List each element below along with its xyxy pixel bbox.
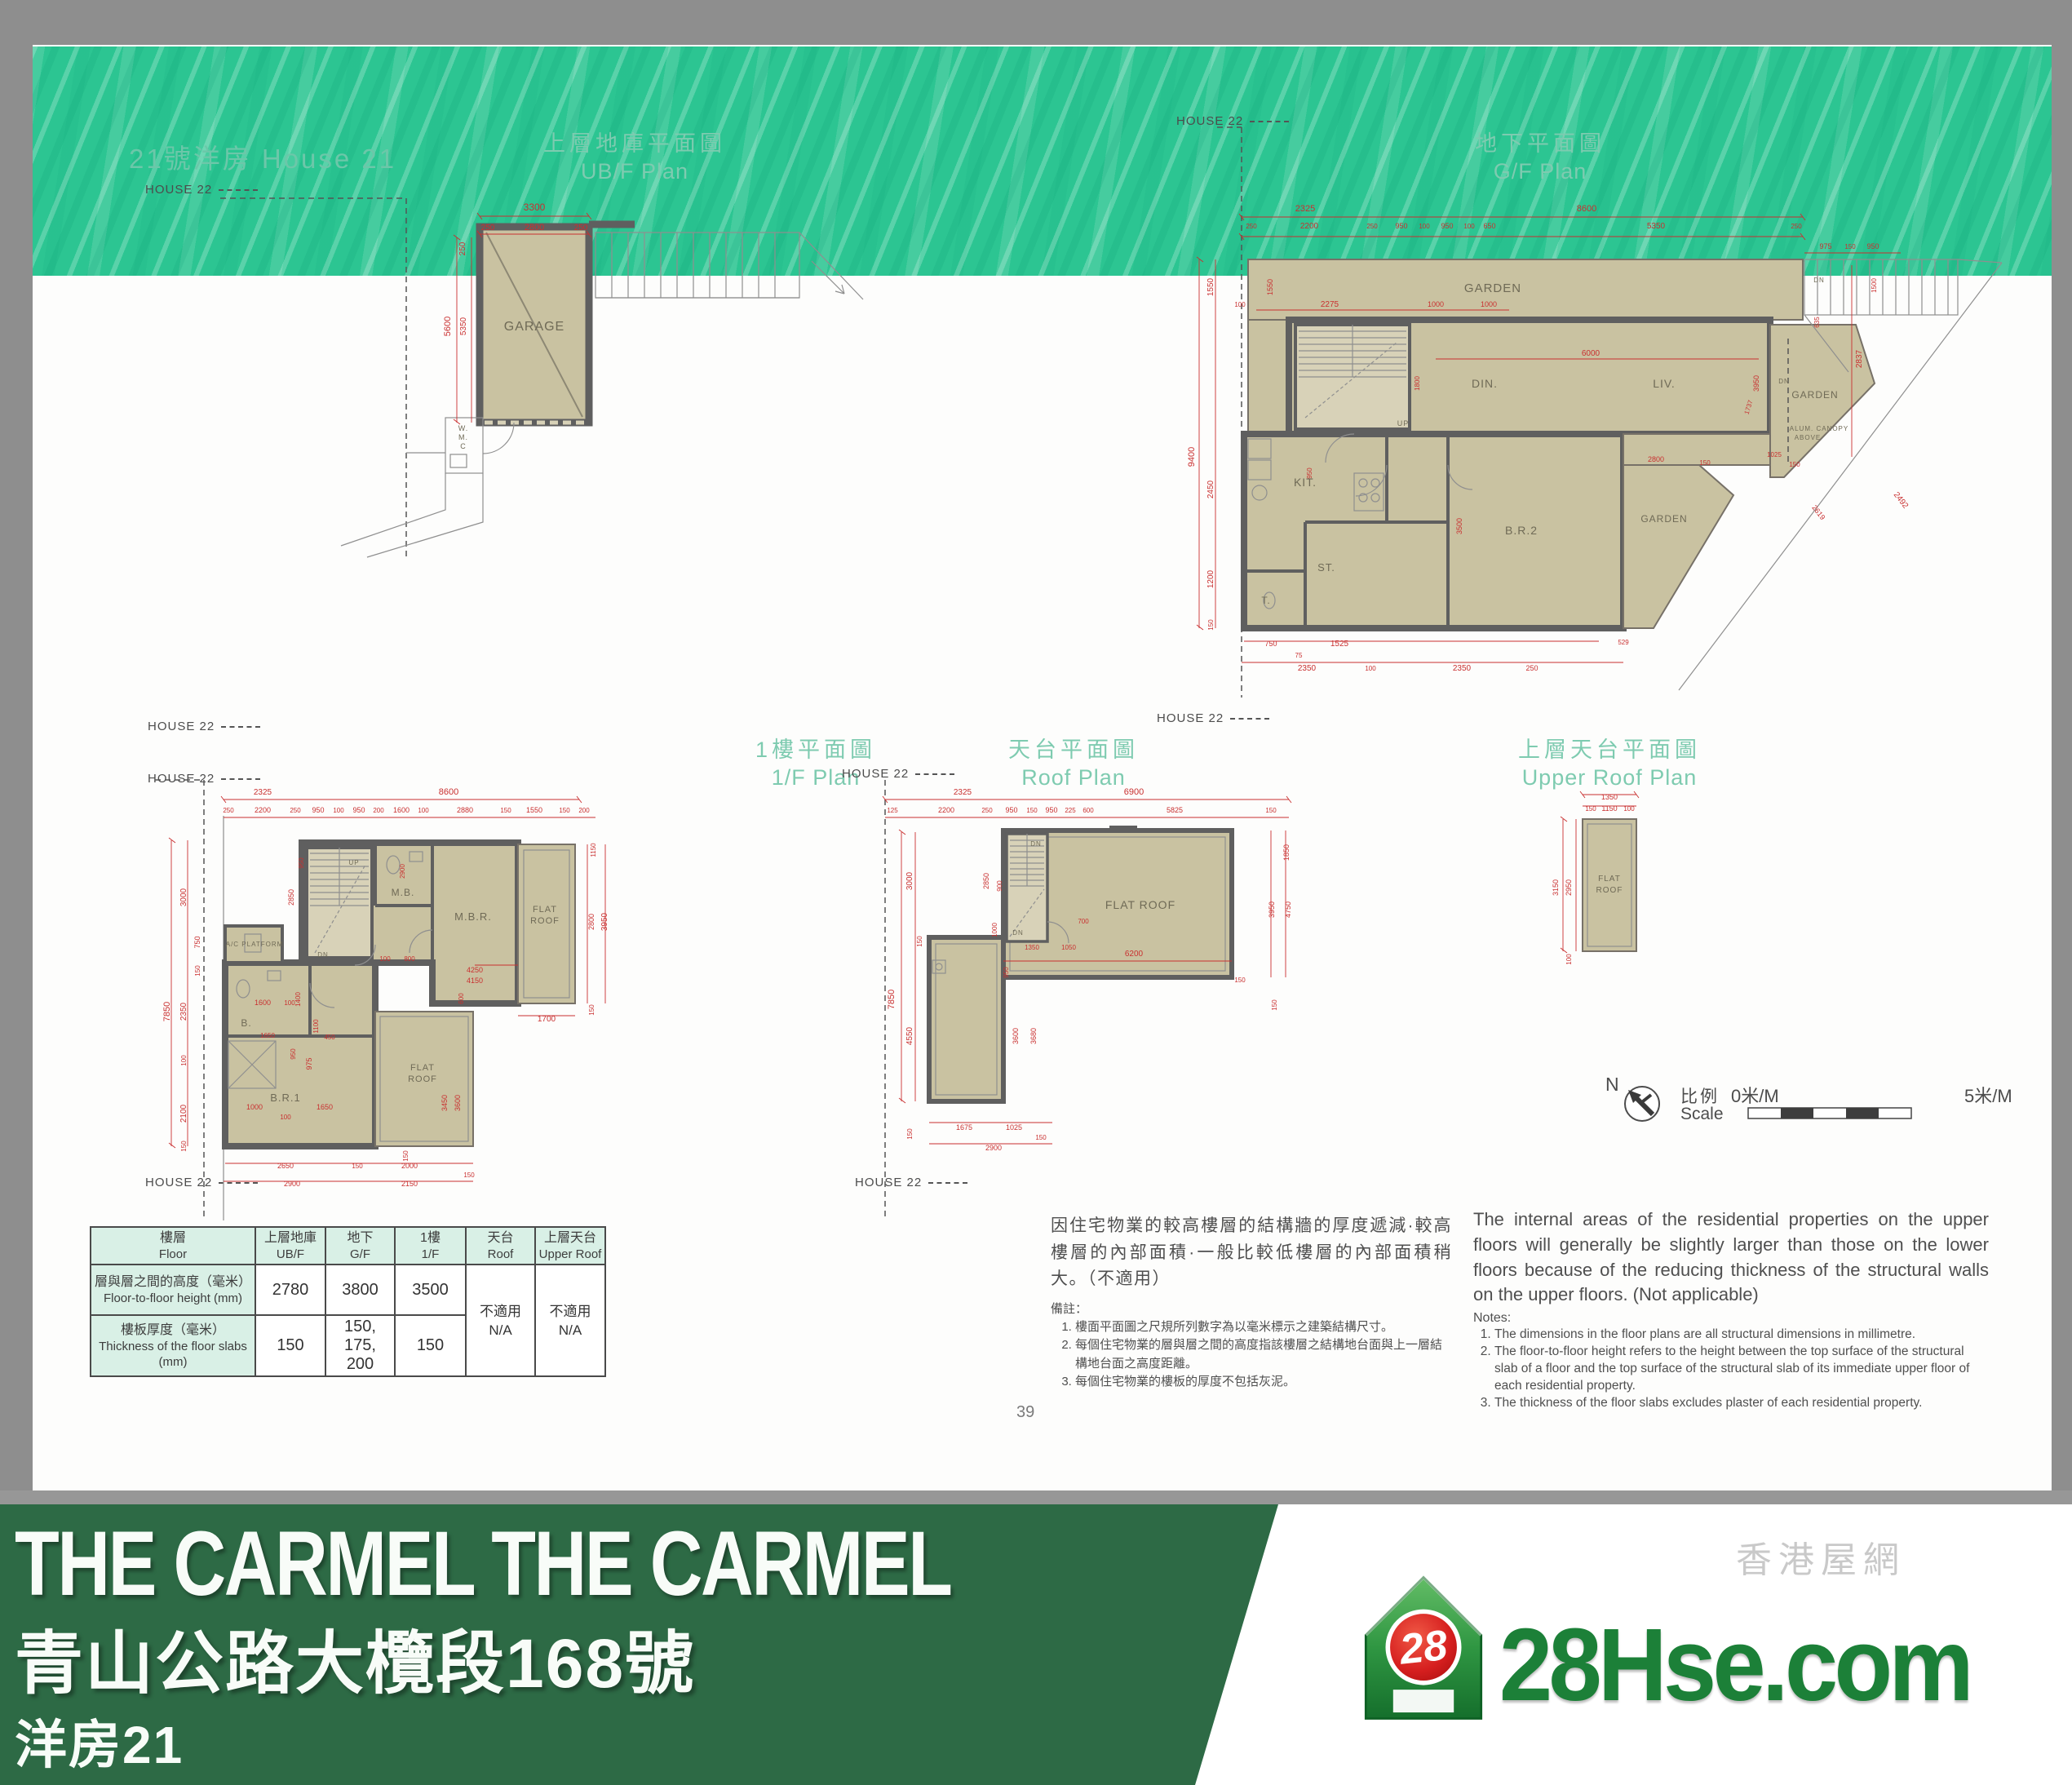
dimension-label: 2450 <box>1206 480 1215 498</box>
dimension-label: 2880 <box>457 806 473 814</box>
dimension-label: 100 <box>180 1055 188 1066</box>
dimension-label: 150 <box>1035 1134 1047 1141</box>
dimension-label: 250 <box>481 224 495 233</box>
dimension-label: 150 <box>402 1150 410 1162</box>
roof-plan-drawing: FLAT ROOFDNDN232569001252200250950150950… <box>865 767 1322 1224</box>
boundary-label-house22: HOUSE 22 <box>148 720 260 733</box>
dimension-label: 250 <box>1366 223 1378 230</box>
dimension-label: 2200 <box>938 806 954 814</box>
dimension-label: 950 <box>1866 242 1879 250</box>
dimension-label: 100 <box>1234 301 1246 308</box>
dimension-label: 1400 <box>294 992 302 1007</box>
dimension-label: 2950 <box>1565 879 1573 896</box>
dimension-label: 2837 <box>1855 349 1864 368</box>
dimension-label: 1550 <box>1206 277 1215 296</box>
dimension-label: 1650 <box>317 1103 333 1111</box>
watermark-text: 香港屋網 <box>1736 1530 1906 1583</box>
dimension-label: 950 <box>1441 222 1453 230</box>
logo-number: 28 <box>1397 1622 1450 1674</box>
dimension-label: 4750 <box>1284 901 1292 918</box>
scale-label-en: Scale <box>1680 1105 1724 1124</box>
room-label: B. <box>241 1017 251 1029</box>
dimension-label: 4250 <box>467 966 483 974</box>
dimension-label: 3950 <box>1268 901 1276 918</box>
dimension-label: 7850 <box>887 990 897 1009</box>
dimension-label: 3950 <box>600 912 609 931</box>
room-label: GARAGE <box>504 320 564 334</box>
dimension-label: 150 <box>1207 619 1215 631</box>
dimension-label: 1525 <box>1330 640 1349 649</box>
room-label: W. <box>458 424 469 432</box>
dimension-label: 6900 <box>1124 787 1144 797</box>
dimension-label: 1200 <box>1206 569 1215 588</box>
dimension-label: 5825 <box>1167 806 1183 814</box>
dimension-label: 2325 <box>254 788 272 797</box>
cell-thickness-ubf: 150 <box>255 1315 325 1376</box>
dimension-label: 2800 <box>587 914 595 930</box>
dimension-label: 100 <box>418 807 429 814</box>
dimension-label: 635 <box>1813 317 1821 328</box>
dimension-label: 150 <box>1234 977 1246 984</box>
dimension-label: 3450 <box>441 1095 449 1111</box>
room-label: FLAT ROOF <box>1105 898 1175 911</box>
dimension-label: 150 <box>194 965 201 977</box>
notes-en-item: The thickness of the floor slabs exclude… <box>1494 1395 1989 1412</box>
dimension-label: 2350 <box>1453 664 1472 673</box>
dimension-label: 100 <box>1623 805 1635 813</box>
upper-roof-title-zh: 上層天台平面圖 <box>1454 737 1764 764</box>
row-label-height: 層與層之間的高度（毫米）Floor-to-floor height (mm) <box>91 1265 255 1315</box>
dimension-label: 3000 <box>905 871 914 890</box>
dimension-label: 1150 <box>590 843 597 857</box>
dimension-label: 2650 <box>277 1162 294 1170</box>
north-label: N <box>1605 1074 1619 1096</box>
dimension-label: 950 <box>298 857 305 869</box>
notes-zh-heading: 備註： <box>1051 1300 1452 1317</box>
page-number: 39 <box>1016 1403 1034 1422</box>
room-label: M.B.R. <box>454 910 492 923</box>
dimension-label: 4150 <box>467 977 483 985</box>
header-floor: 樓層Floor <box>91 1227 255 1265</box>
dimension-label: 6000 <box>1582 349 1600 358</box>
roof-title-zh: 天台平面圖 <box>919 737 1229 764</box>
dimension-label: 1100 <box>312 1019 320 1034</box>
dimension-label: 2200 <box>255 806 271 814</box>
cell-thickness-gf: 150, 175, 200 <box>325 1315 395 1376</box>
table-row-height: 層與層之間的高度（毫米）Floor-to-floor height (mm) 2… <box>91 1265 605 1315</box>
room-label: ST. <box>1317 561 1335 574</box>
dimension-label: 1600 <box>393 806 410 814</box>
dimension-label: 2900 <box>985 1144 1002 1152</box>
notes-en-intro: The internal areas of the residential pr… <box>1473 1207 1989 1308</box>
dimension-label: 150 <box>559 807 570 814</box>
dimension-label: 650 <box>1483 222 1495 230</box>
dimension-label: 250 <box>223 807 234 814</box>
dimension-label: 150 <box>352 1163 363 1170</box>
dimension-label: 750 <box>1264 640 1277 648</box>
dimension-label: 3600 <box>454 1095 462 1111</box>
dimension-label: 200 <box>578 807 590 814</box>
dimension-label: 950 <box>1005 806 1017 814</box>
room-label: ABOVE <box>1795 434 1822 441</box>
boundary-label-house22: HOUSE 22 <box>1157 711 1269 725</box>
dimension-label: 950 <box>1045 806 1057 814</box>
gf-floor-plan-drawing: GARDENDIN.LIV.GARDENALUM. CANOPYABOVEKIT… <box>1167 114 2007 702</box>
room-label: C <box>460 442 467 450</box>
dimension-label: 100 <box>379 955 391 963</box>
room-label: FLAT <box>533 905 557 915</box>
room-label: T. <box>1261 595 1270 606</box>
cell-height-gf: 3800 <box>325 1265 395 1315</box>
ubf-floor-plan-drawing: GARAGEW.M.C3300250280025025056005350 <box>122 184 873 559</box>
dimension-label: 1850 <box>1282 844 1291 861</box>
dimension-label: 3150 <box>1552 879 1560 896</box>
dimension-label: 250 <box>981 807 993 814</box>
dimension-label: 3500 <box>1455 518 1463 534</box>
28hse-logo-text: 28Hse.com <box>1499 1606 1970 1724</box>
dimension-label: 2900 <box>284 1180 300 1188</box>
dimension-label: 1650 <box>260 1032 275 1039</box>
header-gf: 地下G/F <box>325 1227 395 1265</box>
dimension-label: 950 <box>312 806 324 814</box>
room-label: M.B. <box>392 887 415 898</box>
dimension-label: 5350 <box>1647 222 1666 231</box>
dimension-label: 2350 <box>1298 664 1317 673</box>
dimension-label: 529 <box>1618 639 1629 646</box>
dimension-label: 2350 <box>179 1002 188 1021</box>
room-label: DN <box>1012 929 1024 937</box>
dimension-label: 2275 <box>1321 300 1339 309</box>
room-label: GARDEN <box>1791 389 1838 401</box>
dimension-label: 1050 <box>1061 944 1076 951</box>
dimension-label: 1700 <box>538 1015 556 1024</box>
dimension-label: 9400 <box>1187 447 1197 467</box>
dimension-label: 125 <box>887 807 898 814</box>
dimension-label: 1550 <box>1266 279 1274 295</box>
dimension-label: 7850 <box>162 1002 172 1021</box>
cell-na-upper-roof: 不適用N/A <box>535 1265 605 1376</box>
dimension-label: 1800 <box>1414 376 1421 391</box>
scale-zero-label: 0米/M <box>1731 1082 1779 1108</box>
dimension-label: 450 <box>324 1034 335 1041</box>
dimension-label: 150 <box>588 1004 595 1016</box>
room-label: DN <box>317 951 329 959</box>
notes-chinese: 因住宅物業的較高樓層的結構牆的厚度遞減·較高樓層的內部面積·一般比較低樓層的內部… <box>1051 1213 1452 1392</box>
dimension-label: 200 <box>373 807 384 814</box>
room-label: UP <box>348 859 359 866</box>
scale-bar <box>1747 1107 1912 1119</box>
dimension-label: 2325 <box>954 788 972 797</box>
room-label: FLAT <box>410 1063 435 1073</box>
room-label: DN <box>1030 840 1042 848</box>
footer-divider-strip <box>0 1490 2072 1504</box>
dimension-label: 975 <box>1819 242 1831 250</box>
dimension-label: 3000 <box>179 888 188 906</box>
dimension-label: 2100 <box>179 1104 188 1123</box>
notes-en-item: The floor-to-floor height refers to the … <box>1494 1344 1989 1395</box>
dimension-label: 4550 <box>905 1026 914 1045</box>
dimension-label: 2200 <box>1300 222 1319 231</box>
dimension-label: 2850 <box>287 889 295 906</box>
footer-house-number: 洋房21 <box>15 1703 184 1778</box>
room-label: GARDEN <box>1464 281 1521 295</box>
dimension-label: 2800 <box>1648 455 1664 463</box>
room-label: M. <box>458 433 468 441</box>
header-upper-roof: 上層天台Upper Roof <box>535 1227 605 1265</box>
room-label: DN <box>1813 277 1825 284</box>
notes-zh-item: 樓面平面圖之尺規所列數字為以毫米標示之建築結構尺寸。 <box>1075 1318 1452 1337</box>
room-label: UP <box>1397 419 1410 427</box>
north-compass-icon <box>1623 1085 1661 1123</box>
dimension-label: 600 <box>458 993 465 1004</box>
dimension-label: 250 <box>1525 664 1538 672</box>
dimension-label: 3300 <box>524 202 546 213</box>
dimension-label: 1350 <box>1601 793 1618 801</box>
dimension-label: 1350 <box>1025 944 1039 951</box>
dimension-label: 2900 <box>399 864 406 879</box>
dimension-label: 1000 <box>991 923 998 937</box>
dimension-label: 2850 <box>982 873 990 889</box>
dimension-label: 1600 <box>255 999 271 1007</box>
dimension-label: 6200 <box>1125 950 1144 959</box>
notes-zh-list: 樓面平面圖之尺規所列數字為以毫米標示之建築結構尺寸。 每個住宅物業的層與層之間的… <box>1051 1318 1452 1392</box>
dimension-label: 975 <box>305 1057 313 1070</box>
notes-en-list: The dimensions in the floor plans are al… <box>1473 1327 1989 1412</box>
dimension-label: 750 <box>193 936 201 948</box>
notes-en-heading: Notes: <box>1473 1311 1989 1326</box>
dimension-label: 1000 <box>1428 300 1444 308</box>
room-label: ROOF <box>530 916 560 926</box>
dimension-label: 950 <box>1003 967 1010 978</box>
dimension-label: 250 <box>458 241 467 255</box>
dimension-label: 100 <box>1463 223 1475 230</box>
dimension-label: 3680 <box>1029 1028 1038 1044</box>
room-label: ALUM. CANOPY <box>1790 425 1848 432</box>
notes-en-item: The dimensions in the floor plans are al… <box>1494 1327 1989 1344</box>
dimension-label: 600 <box>1082 807 1094 814</box>
dimension-label: 1025 <box>1767 451 1782 458</box>
dimension-label: 100 <box>333 807 344 814</box>
page-title: 21號洋房 House 21 <box>129 137 396 176</box>
room-label: LIV. <box>1653 377 1676 390</box>
brochure-page: 21號洋房 House 21 上層地庫平面圖 UB/F Plan 地下平面圖 G… <box>0 0 2072 1785</box>
notes-zh-item: 每個住宅物業的樓板的厚度不包括灰泥。 <box>1075 1373 1452 1392</box>
cell-height-ubf: 2780 <box>255 1265 325 1315</box>
dimension-label: 950 <box>290 1048 297 1060</box>
dimension-label: 5600 <box>443 317 453 336</box>
dimension-label: 150 <box>500 807 511 814</box>
dimension-label: 150 <box>906 1128 914 1140</box>
dimension-label: 5350 <box>459 317 468 335</box>
dimension-label: 1025 <box>1006 1123 1022 1132</box>
header-1f: 1樓1/F <box>395 1227 466 1265</box>
dimension-label: 950 <box>1306 467 1313 479</box>
dimension-label: 1000 <box>1481 300 1497 308</box>
dimension-label: 1500 <box>1871 278 1878 293</box>
dimension-label: 150 <box>1026 807 1038 814</box>
room-label: DIN. <box>1472 377 1498 390</box>
ubf-title-zh: 上層地庫平面圖 <box>480 131 790 158</box>
dimension-label: 250 <box>1246 223 1257 230</box>
room-label: ROOF <box>408 1074 437 1084</box>
dimension-label: 100 <box>1365 665 1376 672</box>
dimension-label: 1000 <box>246 1103 263 1111</box>
28hse-logo-icon: 28 <box>1348 1568 1499 1728</box>
row-label-thickness: 樓板厚度（毫米）Thickness of the floor slabs (mm… <box>91 1315 255 1376</box>
upper-roof-plan-drawing: FLATROOF1350150115010031502950100 <box>1509 783 1770 1061</box>
notes-english: The internal areas of the residential pr… <box>1473 1207 1989 1412</box>
notes-zh-intro: 因住宅物業的較高樓層的結構牆的厚度遞減·較高樓層的內部面積·一般比較低樓層的內部… <box>1051 1213 1452 1293</box>
scale-five-label: 5米/M <box>1964 1082 2012 1108</box>
room-label: B.R.1 <box>270 1092 301 1104</box>
ubf-title-en: UB/F Plan <box>480 158 790 186</box>
dimension-label: 250 <box>574 224 588 233</box>
dimension-label: 2800 <box>525 223 544 233</box>
dimension-label: 150 <box>1271 999 1278 1011</box>
dimension-label: 8600 <box>1577 204 1596 214</box>
dimension-label: 150 <box>916 936 923 947</box>
dimension-label: 1675 <box>956 1123 972 1132</box>
dimension-label: 150 <box>180 1141 188 1152</box>
dimension-label: 100 <box>1565 954 1573 965</box>
dimension-label: 3950 <box>1752 375 1760 392</box>
room-label: FLAT <box>1598 875 1621 884</box>
dimension-label: 1550 <box>526 806 542 814</box>
dimension-label: 150 <box>1585 805 1596 813</box>
dimension-label: 2000 <box>401 1162 418 1170</box>
room-label: GARDEN <box>1640 513 1687 525</box>
room-label: B.R.2 <box>1505 524 1538 537</box>
dimension-label: 100 <box>280 1114 291 1121</box>
header-roof: 天台Roof <box>466 1227 535 1265</box>
ubf-plan-title: 上層地庫平面圖 UB/F Plan <box>480 131 790 186</box>
room-label: DN <box>1778 378 1790 385</box>
dimension-label: 950 <box>352 806 365 814</box>
dimension-label: 1150 <box>1601 804 1617 813</box>
dimension-label: 150 <box>1844 243 1856 250</box>
header-ubf: 上層地庫UB/F <box>255 1227 325 1265</box>
dimension-label: 8600 <box>439 787 458 797</box>
dimension-label: 150 <box>1265 807 1277 814</box>
room-label: A/C PLATFORM <box>226 941 284 948</box>
notes-zh-item: 每個住宅物業的層與層之間的高度指該樓層之結構地台面與上一層結構地台面之高度距離。 <box>1075 1336 1452 1373</box>
dimension-label: 800 <box>404 955 415 963</box>
floor-info-table: 樓層Floor 上層地庫UB/F 地下G/F 1樓1/F 天台Roof 上層天台… <box>90 1226 606 1377</box>
cell-thickness-1f: 150 <box>395 1315 466 1376</box>
cell-height-1f: 3500 <box>395 1265 466 1315</box>
dimension-label: 250 <box>1791 223 1802 230</box>
footer-address: 青山公路大欖段168號 <box>15 1609 695 1707</box>
dimension-label: 225 <box>1065 807 1076 814</box>
table-header-row: 樓層Floor 上層地庫UB/F 地下G/F 1樓1/F 天台Roof 上層天台… <box>91 1227 605 1265</box>
dimension-label: 3600 <box>1012 1028 1020 1044</box>
dimension-label: 150 <box>463 1172 475 1179</box>
dimension-label: 2492 <box>1892 490 1910 511</box>
dimension-label: 100 <box>1419 223 1430 230</box>
1f-floor-plan-drawing: A/C PLATFORMM.B.M.B.R.FLATROOFB.B.R.1FLA… <box>122 767 653 1224</box>
dimension-label: 700 <box>1078 918 1089 925</box>
room-label: ROOF <box>1596 886 1623 895</box>
dimension-label: 75 <box>1295 652 1303 659</box>
dimension-label: 250 <box>290 807 301 814</box>
dimension-label: 150 <box>1789 461 1800 468</box>
dimension-label: 950 <box>1395 222 1407 230</box>
dimension-label: 2150 <box>401 1180 418 1188</box>
footer-project-name: THE CARMEL THE CARMEL <box>15 1511 951 1616</box>
cell-na-roof: 不適用N/A <box>466 1265 535 1376</box>
dimension-label: 900 <box>996 880 1003 892</box>
dimension-label: 150 <box>1699 459 1711 467</box>
dimension-label: 2325 <box>1295 204 1315 214</box>
